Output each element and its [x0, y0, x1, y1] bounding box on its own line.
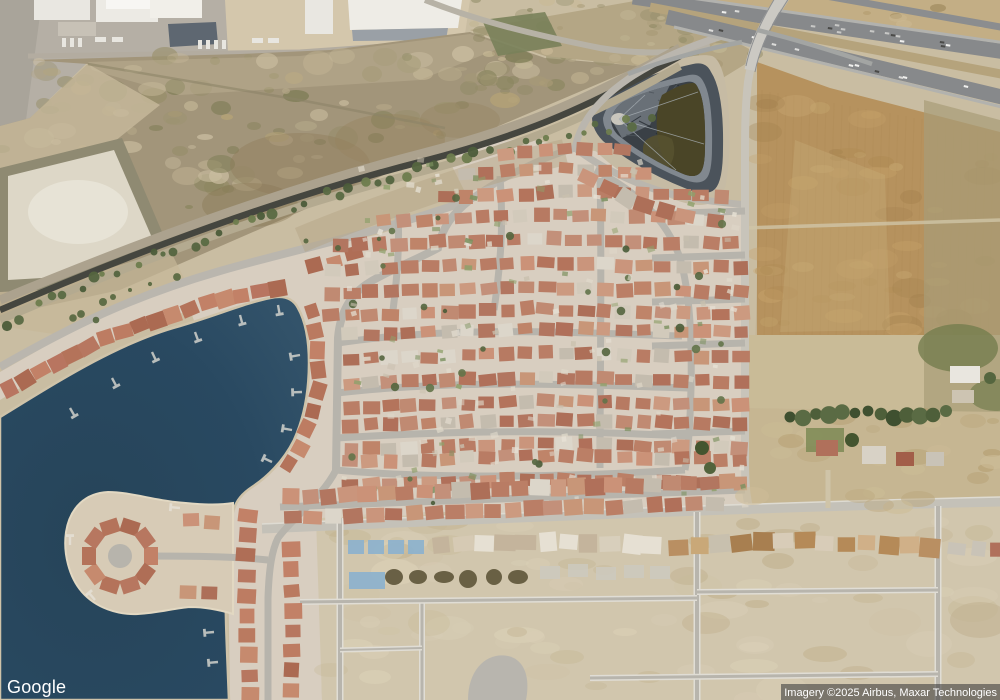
svg-text:Imagery ©2025 Airbus, Maxar Te: Imagery ©2025 Airbus, Maxar Technologies: [784, 687, 997, 699]
svg-text:Google: Google: [7, 677, 66, 697]
